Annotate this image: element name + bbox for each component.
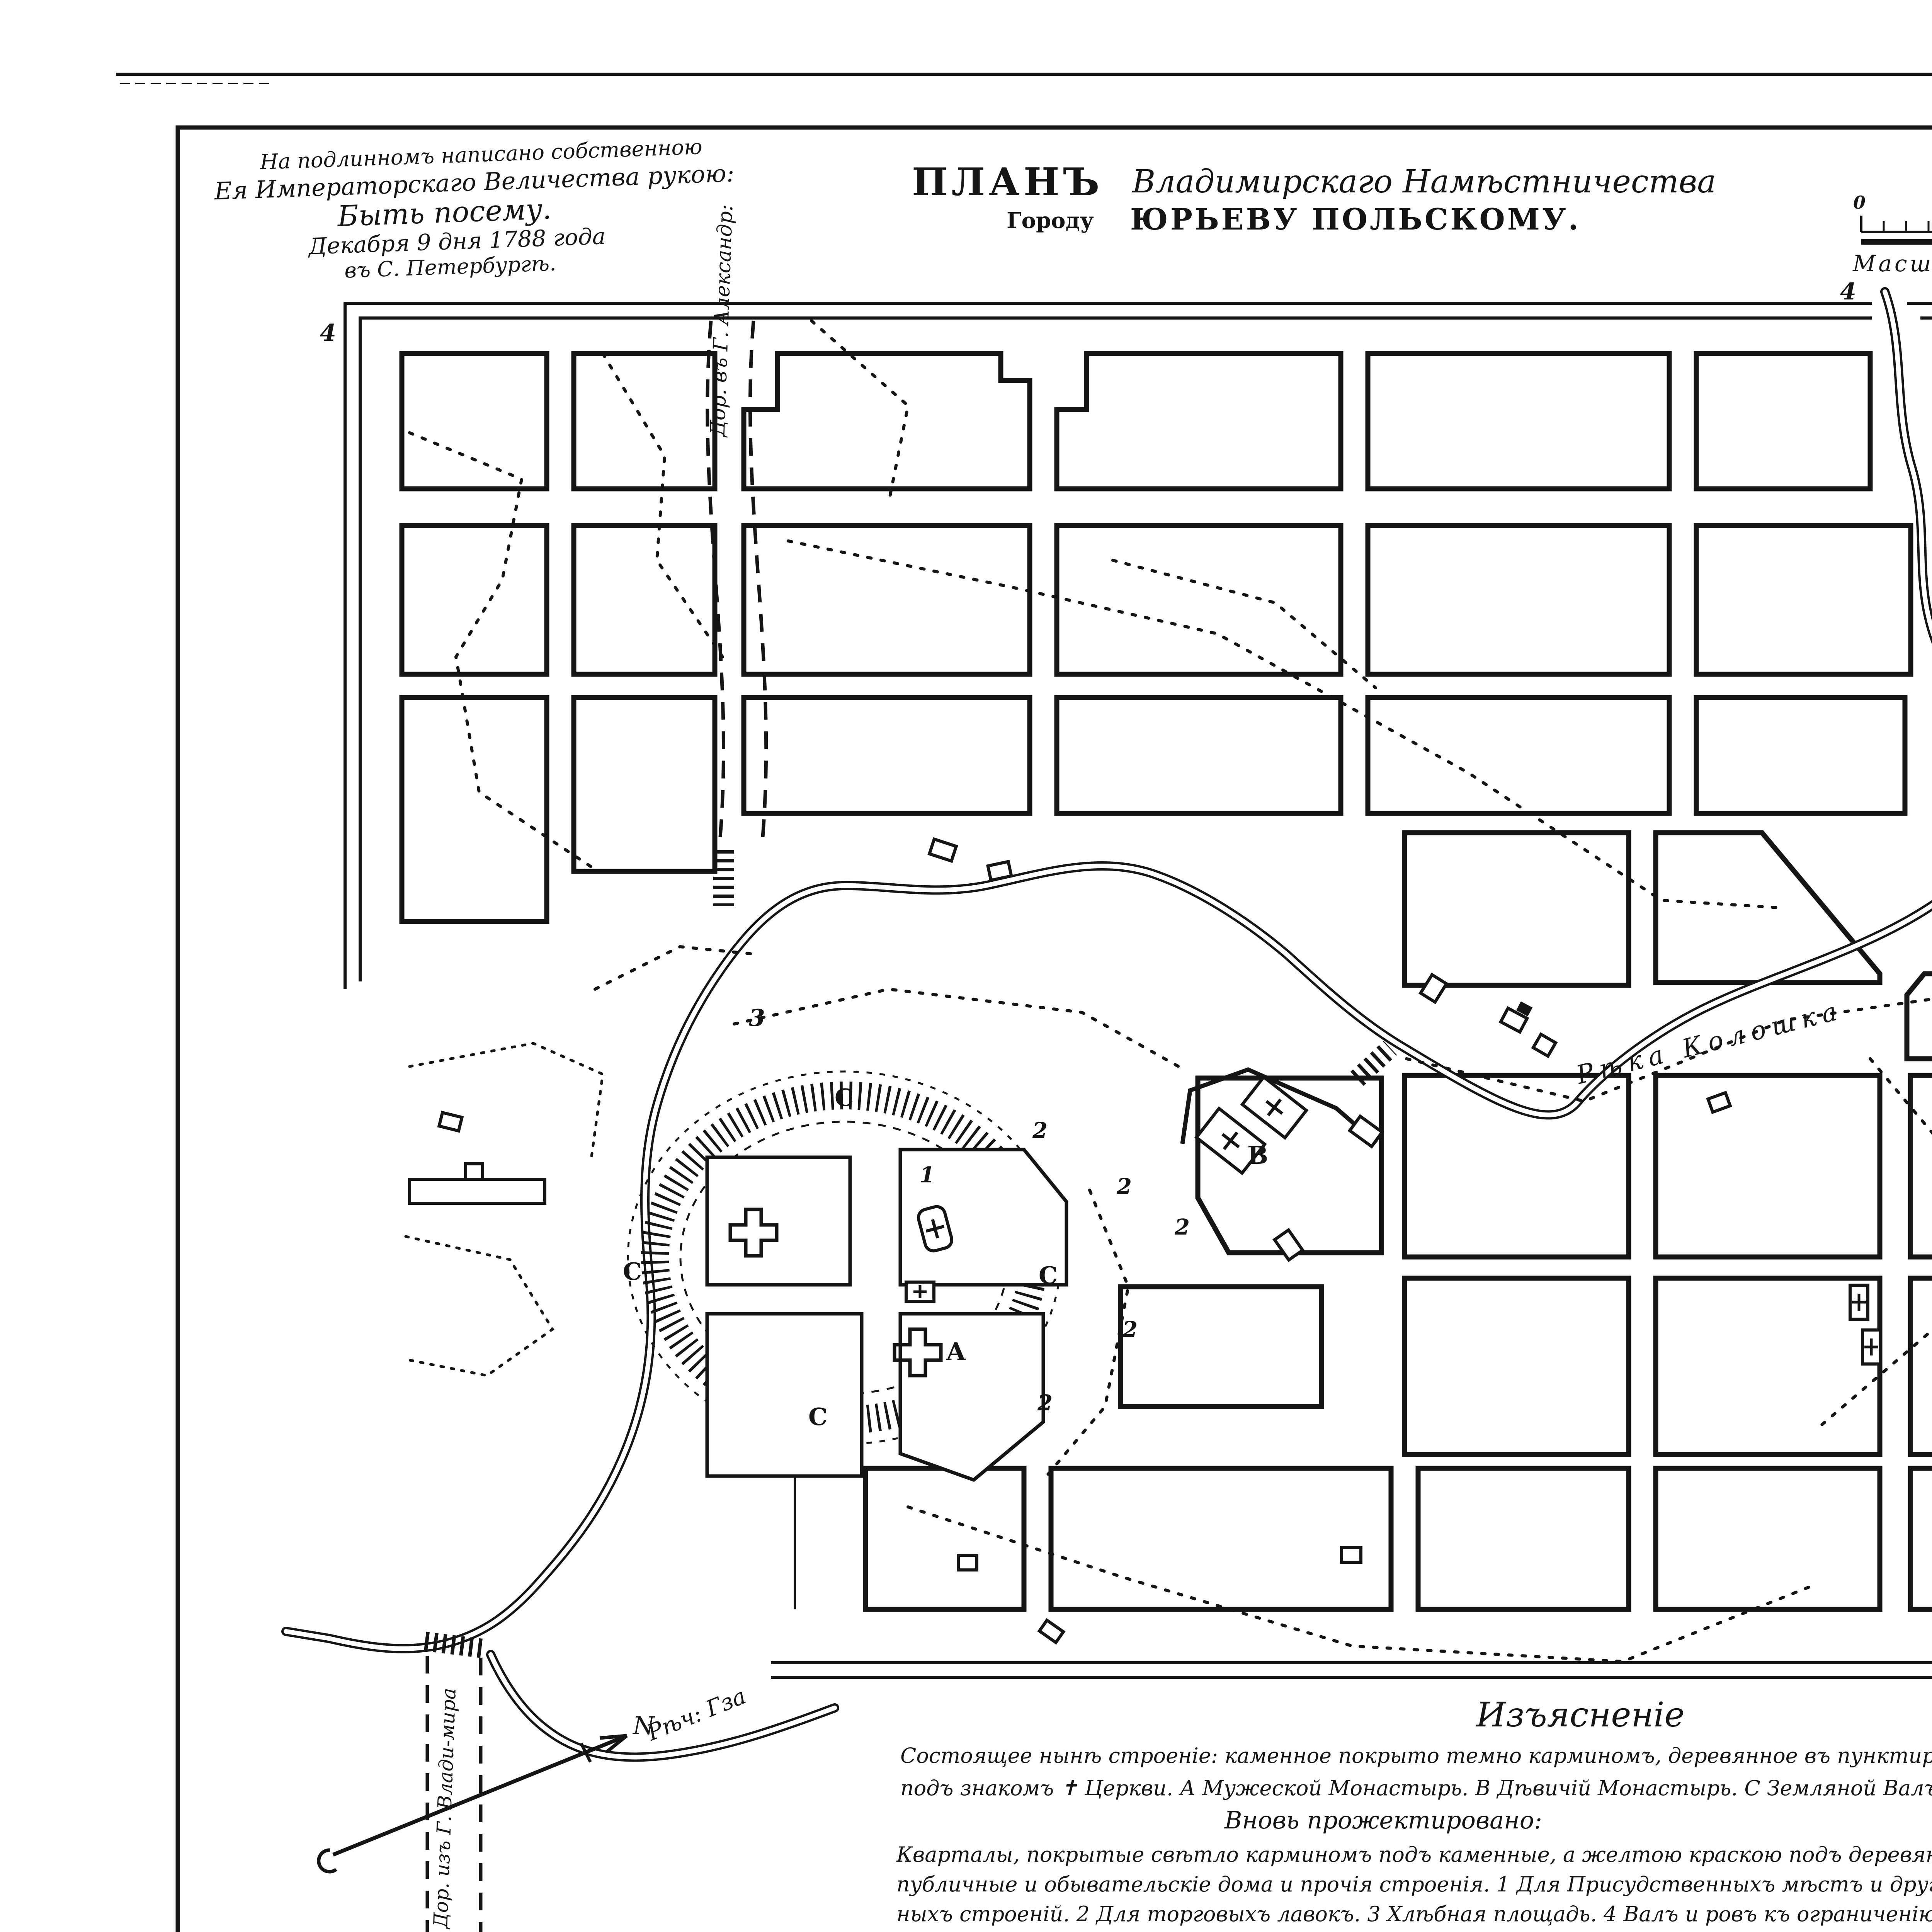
title-city-prefix: Городу xyxy=(1007,208,1094,233)
marker-c-north: C xyxy=(835,1083,854,1112)
bridge-east xyxy=(1357,1048,1390,1079)
marker-2-shops-b: 2 xyxy=(1116,1174,1132,1199)
marker-2-shops-d: 2 xyxy=(1122,1317,1138,1342)
legend-line5: ныхъ строеній. 2 Для торговыхъ лавокъ. 3… xyxy=(896,1902,1932,1926)
legend-line2: подъ знакомъ ✝ Церкви. А Мужеской Монаст… xyxy=(900,1776,1932,1800)
legend-line1: Состоящее нынѣ строеніе: каменное покрыт… xyxy=(900,1743,1932,1768)
marker-2-shops-a: 2 xyxy=(1032,1118,1048,1143)
title-province: Владимирскаго Намѣстничества xyxy=(1131,163,1716,200)
eastern-city-blocks xyxy=(1121,974,1932,1454)
legend-subheading: Вновь прожектировано: xyxy=(1224,1806,1542,1834)
marker-b-nunnery: В xyxy=(1247,1141,1268,1170)
title-plan: ПЛАНЪ xyxy=(912,160,1103,204)
river-gza-label: Рѣч: Гза xyxy=(643,1683,750,1746)
old-road-traces xyxy=(410,321,1932,1662)
scale-tick-0: 0 xyxy=(1853,192,1866,213)
marker-1-courts: 1 xyxy=(920,1162,935,1188)
bottom-city-blocks xyxy=(795,1468,1932,1609)
scale-bar: 0 50 100 200 Масштабъ въ Анг. дюймѣ 100 … xyxy=(1852,192,1932,277)
map-title: ПЛАНЪ Владимирскаго Намѣстничества Город… xyxy=(912,160,1716,236)
legend-line3: Кварталы, покрытые свѣтло карминомъ подъ… xyxy=(896,1842,1932,1867)
imperial-note: На подлинномъ написано собственною Ея Им… xyxy=(213,133,738,287)
marker-c-east: C xyxy=(1039,1261,1058,1289)
upper-city-blocks xyxy=(402,354,1932,985)
compass-north-label: N xyxy=(632,1712,655,1740)
marker-2-shops-c: 2 xyxy=(1174,1214,1190,1240)
fortress xyxy=(628,1071,1066,1480)
scale-caption: Масштабъ въ Анг. дюймѣ 100 Саж. xyxy=(1852,250,1932,277)
legend-heading: Изъясненіе xyxy=(1475,1695,1684,1735)
marker-c-west: C xyxy=(623,1257,642,1286)
west-plots xyxy=(406,1043,603,1376)
top-rule xyxy=(116,74,1932,83)
legend: Изъясненіе Состоящее нынѣ строеніе: каме… xyxy=(896,1695,1932,1926)
marker-c-south: C xyxy=(808,1403,827,1431)
map-canvas: На подлинномъ написано собственною Ея Им… xyxy=(0,0,1932,1932)
title-city: ЮРЬЕВУ ПОЛЬСКОМУ. xyxy=(1130,202,1581,236)
marker-3-bread-square: 3 xyxy=(749,1005,765,1032)
road-alexandrov-label: Дор. въ Г. Александр: xyxy=(706,204,737,438)
marker-a-monastery: А xyxy=(946,1337,966,1366)
legend-line4: публичные и обывательскіе дома и прочія … xyxy=(896,1872,1932,1896)
marker-4-nw: 4 xyxy=(320,320,336,347)
compass: N xyxy=(319,1712,655,1872)
map-sheet: На подлинномъ написано собственною Ея Им… xyxy=(0,0,1932,1932)
marker-2-shops-e: 2 xyxy=(1037,1390,1053,1416)
marker-4-ne: 4 xyxy=(1840,278,1856,305)
